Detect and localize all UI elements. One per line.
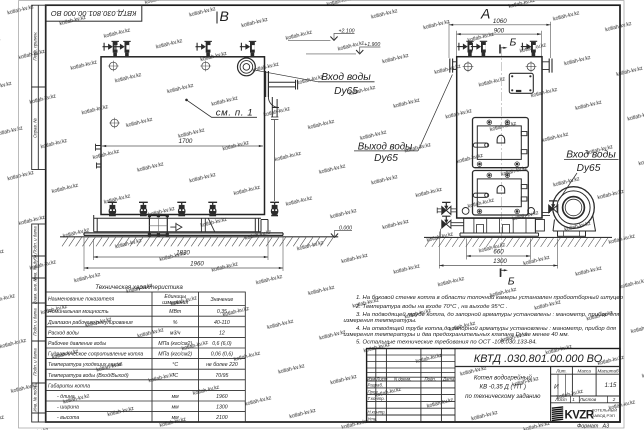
svg-text:1700: 1700 bbox=[179, 138, 193, 145]
svg-text:Утв.: Утв. bbox=[368, 416, 378, 421]
svg-text:не более 220: не более 220 bbox=[206, 362, 238, 368]
svg-text:Перв. примен.: Перв. примен. bbox=[32, 31, 37, 60]
svg-text:Разраб.: Разраб. bbox=[368, 383, 384, 388]
svg-text:Температура уходящих газов: Температура уходящих газов bbox=[48, 362, 121, 368]
svg-text:КВТД .030.801.00.000 ВО: КВТД .030.801.00.000 ВО bbox=[474, 353, 603, 365]
svg-text:1960: 1960 bbox=[190, 260, 204, 267]
svg-text:+1.900: +1.900 bbox=[364, 42, 380, 48]
svg-text:2. Температура воды на входе: 2. Температура воды на входе 70°С , на в… bbox=[355, 304, 508, 310]
svg-text:Лит.: Лит. bbox=[555, 369, 567, 374]
svg-text:м3/ч: м3/ч bbox=[170, 330, 181, 336]
svg-text:- ширина: - ширина bbox=[57, 405, 79, 411]
svg-text:900: 900 bbox=[494, 28, 505, 35]
svg-text:3. На подводящей трубе котла,: 3. На подводящей трубе котла, до запорно… bbox=[356, 311, 620, 318]
svg-text:0,35: 0,35 bbox=[217, 309, 227, 315]
svg-text:Справ. №: Справ. № bbox=[32, 118, 37, 138]
svg-text:660: 660 bbox=[493, 248, 504, 255]
svg-text:мм: мм bbox=[172, 415, 180, 421]
svg-text:КВТД.030.801.00.000 ВО: КВТД.030.801.00.000 ВО bbox=[51, 9, 137, 18]
svg-text:Гидравлическое сопротивление к: Гидравлическое сопротивление котла bbox=[48, 352, 143, 358]
svg-text:МВт: МВт bbox=[169, 309, 182, 315]
svg-text:0,6 (6,0): 0,6 (6,0) bbox=[212, 341, 232, 347]
svg-text:12: 12 bbox=[219, 330, 225, 336]
svg-text:Инв. № дубл.: Инв. № дубл. bbox=[32, 253, 37, 280]
svg-text:И: И bbox=[554, 384, 559, 391]
svg-text:А: А bbox=[480, 5, 490, 21]
svg-text:см. п. 1: см. п. 1 bbox=[216, 108, 253, 119]
svg-text:Расход воды: Расход воды bbox=[48, 330, 79, 336]
svg-text:Рабочее давление воды: Рабочее давление воды bbox=[48, 341, 106, 347]
svg-text:ЗАВОД РЭП: ЗАВОД РЭП bbox=[592, 413, 615, 418]
svg-text:- высота: - высота bbox=[57, 415, 79, 421]
svg-text:Лист: Лист bbox=[375, 376, 387, 381]
svg-text:Н.контр.: Н.контр. bbox=[368, 410, 386, 415]
svg-text:КОТЕЛЬНЫЙ: КОТЕЛЬНЫЙ bbox=[592, 408, 617, 413]
svg-text:Т.контр.: Т.контр. bbox=[368, 396, 385, 401]
svg-text:Dy65: Dy65 bbox=[374, 153, 398, 164]
svg-text:измерения: измерения bbox=[162, 300, 188, 306]
svg-text:- длина: - длина bbox=[57, 394, 75, 400]
svg-text:Пров.: Пров. bbox=[368, 389, 379, 394]
svg-text:N докум.: N докум. bbox=[394, 376, 411, 381]
svg-text:40-110: 40-110 bbox=[214, 320, 230, 326]
svg-text:Инв. № подл.: Инв. № подл. bbox=[32, 384, 37, 411]
svg-text:%: % bbox=[173, 320, 178, 326]
svg-text:1830: 1830 bbox=[176, 249, 190, 256]
svg-text:°С: °С bbox=[172, 362, 178, 368]
svg-text:0.000: 0.000 bbox=[339, 225, 352, 231]
svg-text:°С: °С bbox=[172, 373, 178, 379]
svg-text:Изм: Изм bbox=[367, 376, 375, 381]
svg-text:KVZR: KVZR bbox=[565, 410, 595, 422]
svg-text:Dy65: Dy65 bbox=[334, 86, 358, 97]
svg-text:В: В bbox=[220, 8, 229, 24]
svg-text:измерения температуры и два пр: измерения температуры и два предохраните… bbox=[344, 332, 570, 338]
svg-text:Техническая характеристика: Техническая характеристика bbox=[95, 284, 183, 291]
svg-text:4. На отводящей трубе котла,д: 4. На отводящей трубе котла,до запорной … bbox=[356, 325, 617, 332]
svg-text:Взам. инв. №: Взам. инв. № bbox=[32, 277, 37, 304]
svg-text:2: 2 bbox=[612, 397, 616, 402]
svg-text:Подп. и дата: Подп. и дата bbox=[32, 308, 37, 336]
svg-text:МПа (кгс/см2): МПа (кгс/см2) bbox=[158, 341, 192, 347]
svg-text:2100: 2100 bbox=[215, 415, 228, 421]
svg-text:5. Остальные технические треб: 5. Остальные технические требования по О… bbox=[356, 339, 537, 345]
svg-text:Подп. и дата: Подп. и дата bbox=[32, 226, 37, 254]
svg-text:Номинальная мощность: Номинальная мощность bbox=[48, 309, 109, 315]
svg-text:Подп.: Подп. bbox=[425, 376, 436, 381]
svg-text:Котел водогрейный: Котел водогрейный bbox=[474, 375, 533, 382]
svg-text:Вход воды: Вход воды bbox=[566, 150, 616, 161]
svg-text:Формат: Формат bbox=[577, 424, 599, 430]
svg-text:Подп. и дата: Подп. и дата bbox=[32, 348, 37, 376]
svg-text:Дата: Дата bbox=[442, 376, 455, 381]
svg-text:1:15: 1:15 bbox=[605, 383, 617, 389]
svg-text:Б: Б bbox=[508, 275, 515, 287]
svg-text:Диапазон рабочего регулировани: Диапазон рабочего регулирования bbox=[47, 320, 133, 326]
svg-text:Наименование показателя: Наименование показателя bbox=[48, 297, 114, 303]
svg-text:1300: 1300 bbox=[216, 405, 228, 411]
svg-text:Значение: Значение bbox=[211, 297, 234, 303]
svg-text:Габариты котла: Габариты котла bbox=[48, 383, 90, 389]
svg-text:измерения температуры.: измерения температуры. bbox=[344, 318, 417, 324]
svg-text:мм: мм bbox=[172, 394, 180, 400]
svg-text:1. На боковой стенке котла в: 1. На боковой стенке котла в области топ… bbox=[356, 294, 624, 301]
svg-text:Масса: Масса bbox=[578, 369, 592, 374]
svg-text:Масштаб: Масштаб bbox=[597, 369, 618, 374]
svg-text:1960: 1960 bbox=[216, 394, 228, 400]
svg-text:1060: 1060 bbox=[493, 18, 507, 25]
svg-text:Dy65: Dy65 bbox=[577, 163, 601, 174]
svg-text:по техническому заданию: по техническому заданию bbox=[465, 393, 541, 400]
svg-text:70/95: 70/95 bbox=[215, 373, 228, 379]
svg-text:Б: Б bbox=[510, 37, 517, 49]
svg-text:+2.100: +2.100 bbox=[339, 28, 355, 34]
svg-text:1300: 1300 bbox=[493, 258, 507, 265]
svg-text:Лист: Лист bbox=[554, 397, 567, 402]
svg-text:Температура воды (Вход/Выход): Температура воды (Вход/Выход) bbox=[48, 373, 129, 379]
svg-text:0,06 (0,6): 0,06 (0,6) bbox=[211, 352, 233, 358]
svg-text:МПа (кгс/см2): МПа (кгс/см2) bbox=[158, 352, 192, 358]
svg-text:мм: мм bbox=[172, 405, 180, 411]
svg-text:Листов: Листов bbox=[579, 397, 597, 402]
svg-text:Вход воды: Вход воды bbox=[321, 72, 371, 83]
svg-text:КВ -0,35 Д ( ПТ ): КВ -0,35 Д ( ПТ ) bbox=[480, 384, 527, 391]
svg-text:А3: А3 bbox=[602, 424, 610, 430]
